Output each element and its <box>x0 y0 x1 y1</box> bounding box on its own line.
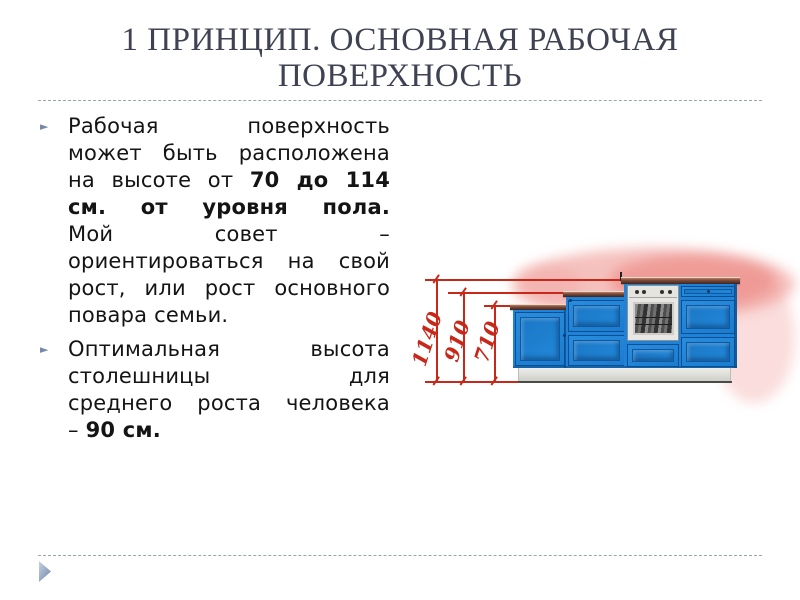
bullet-line: может быть расположена <box>68 140 390 167</box>
oven-control-panel <box>629 287 677 298</box>
bullet-line: среднего роста человека <box>68 390 390 417</box>
drawer-panel <box>568 335 625 366</box>
plinth <box>518 367 731 381</box>
slide-title: 1 ПРИНЦИП. ОСНОВНАЯ РАБОЧАЯ ПОВЕРХНОСТЬ <box>80 22 720 94</box>
oven <box>627 285 679 341</box>
bullet-item: ► Оптимальная высотастолешницы длясредне… <box>40 336 390 444</box>
cabinet-door-panel <box>515 312 565 366</box>
oven-knob <box>660 290 664 294</box>
oven-rack-line <box>635 324 672 325</box>
screw-dot <box>569 299 572 302</box>
next-slide-arrow[interactable] <box>39 561 51 582</box>
bullet-line: см. от уровня пола. <box>68 194 390 221</box>
bullet-line: рост, или рост основного <box>68 275 390 302</box>
drawer-panel <box>681 300 735 334</box>
bullet-line: столешницы для <box>68 363 390 390</box>
bullet-line: Мой совет – <box>68 221 390 248</box>
tall-countertop <box>621 277 740 284</box>
floor-line <box>425 381 519 383</box>
dimension-extension-910 <box>448 292 565 294</box>
dimension-extension-1140 <box>425 279 622 281</box>
bullet-triangle-icon: ► <box>40 336 68 363</box>
bullet-line: – 90 см. <box>68 417 390 444</box>
bullet-list: ► Рабочая поверхностьможет быть располож… <box>40 113 390 444</box>
drawer-handle <box>707 290 710 293</box>
bullet-line: Оптимальная высота <box>68 336 390 363</box>
oven-rack-line <box>635 317 672 318</box>
bullet-line: на высоте от 70 до 114 <box>68 167 390 194</box>
bullet-text: Оптимальная высотастолешницы длясреднего… <box>68 336 390 444</box>
oven-knob <box>668 290 672 294</box>
oven-knob <box>635 290 639 294</box>
bullet-text: Рабочая поверхностьможет быть расположен… <box>68 113 390 329</box>
oven-door-glass <box>633 302 674 335</box>
bullet-triangle-icon: ► <box>40 113 68 140</box>
oven-knob <box>642 290 646 294</box>
bullet-line: повара семьи. <box>68 302 390 329</box>
floor-line <box>518 381 732 383</box>
drawer-panel <box>681 337 735 367</box>
bullet-line: ориентироваться на свой <box>68 248 390 275</box>
title-divider <box>38 100 762 101</box>
drawer-panel <box>568 300 625 332</box>
bullet-line: Рабочая поверхность <box>68 113 390 140</box>
bullet-item: ► Рабочая поверхностьможет быть располож… <box>40 113 390 329</box>
kitchen-dimensions-figure: 1140 910 710 <box>415 115 797 417</box>
slide: 1 ПРИНЦИП. ОСНОВНАЯ РАБОЧАЯ ПОВЕРХНОСТЬ … <box>0 0 800 600</box>
drawer-panel <box>627 344 679 367</box>
footer-divider <box>38 555 762 556</box>
